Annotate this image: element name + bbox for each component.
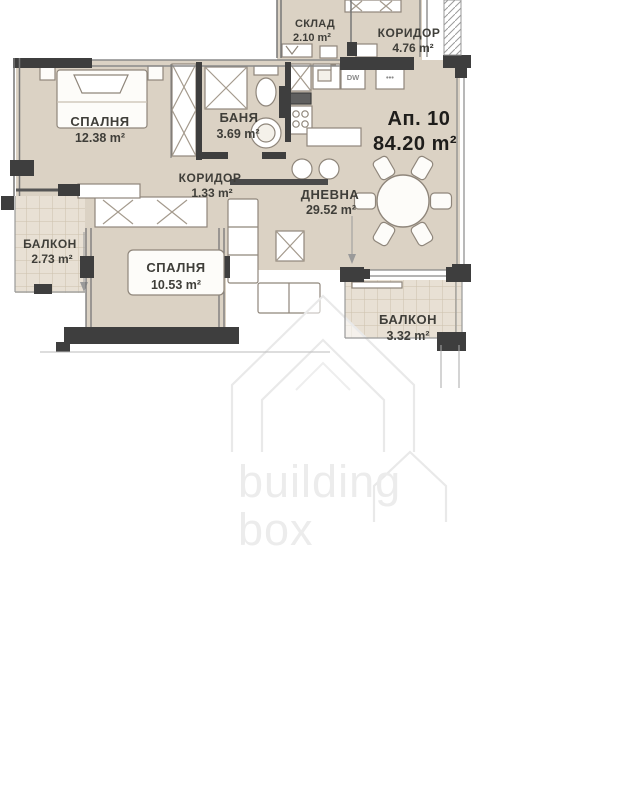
room-label-living-room-name: ДНЕВНА — [301, 187, 360, 202]
shower-icon — [205, 67, 247, 109]
room-label-balcony-left-area: 2.73 m² — [31, 252, 72, 266]
wall-segment — [1, 196, 14, 210]
coffee-table-icon — [276, 231, 304, 261]
kitchen-grill-icon — [290, 93, 311, 104]
wall-segment — [262, 152, 286, 159]
room-label-corridor-name: КОРИДОР — [179, 171, 242, 185]
wall-segment — [56, 342, 70, 352]
dishwasher-label: DW — [347, 73, 360, 82]
tv-stand-icon — [230, 179, 328, 185]
window-hatch — [444, 0, 461, 55]
room-label-bathroom-area: 3.69 m² — [216, 127, 259, 141]
wall-segment — [10, 160, 34, 176]
wall-segment — [443, 55, 471, 68]
wardrobe-icon — [95, 197, 207, 227]
threshold-icon — [352, 282, 402, 288]
toilet-icon — [254, 66, 278, 106]
floor-plan-page: СКЛАД 2.10 m² КОРИДОР 4.76 m² СПАЛНЯ 12.… — [0, 0, 625, 785]
wall-segment — [13, 58, 92, 68]
wall-segment — [196, 62, 202, 160]
wall-segment — [64, 327, 239, 344]
appliance-dots-label: ••• — [386, 73, 394, 82]
door-handle — [362, 269, 370, 279]
wall-segment — [279, 86, 287, 118]
room-label-balcony-left-name: БАЛКОН — [23, 237, 77, 251]
wall-segment — [80, 256, 94, 278]
bedroom-2-label-box: СПАЛНЯ 10.53 m² — [128, 250, 224, 295]
room-label-bedroom-1-area: 12.38 m² — [75, 131, 125, 145]
watermark-brand: building box — [238, 456, 401, 555]
kitchen-hood-icon — [290, 64, 311, 91]
watermark-line-2: box — [238, 504, 314, 555]
wall-segment — [58, 184, 80, 196]
kitchen-sink-icon — [313, 64, 340, 89]
wall-segment — [340, 57, 414, 70]
wall-segment — [455, 68, 467, 78]
chair-icon — [431, 193, 452, 209]
apartment-area-label: 84.20 m² — [373, 133, 457, 155]
stool-icon — [292, 159, 312, 179]
storage-shelf-icon — [282, 44, 312, 57]
kitchen-counter-icon — [307, 128, 361, 146]
wardrobe-icon — [172, 64, 196, 156]
nightstand-icon — [148, 66, 163, 80]
room-label-bedroom-1-name: СПАЛНЯ — [70, 114, 129, 129]
wall-segment — [200, 152, 228, 159]
room-label-storage-area: 2.10 m² — [293, 32, 331, 44]
room-label-living-room-area: 29.52 m² — [306, 203, 356, 217]
room-label-corridor-area: 1.33 m² — [191, 186, 232, 200]
apartment-number-label: Ап. 10 — [388, 108, 451, 130]
room-label-balcony-right-area: 3.32 m² — [386, 329, 429, 343]
washer-icon — [356, 44, 377, 57]
room-label-corridor-top-name: КОРИДОР — [378, 26, 441, 40]
wardrobe-icon — [345, 0, 401, 12]
watermark-line-1: building — [238, 456, 401, 507]
dresser-icon — [78, 184, 140, 198]
stool-icon — [319, 159, 339, 179]
wall-segment — [34, 284, 52, 294]
wall-segment — [347, 42, 357, 56]
room-label-storage-name: СКЛАД — [295, 18, 335, 30]
cabinet-icon — [320, 46, 337, 58]
room-label-bedroom-2-name: СПАЛНЯ — [146, 260, 205, 275]
room-label-bedroom-2-area: 10.53 m² — [151, 278, 201, 292]
wall-segment — [340, 267, 364, 282]
nightstand-icon — [40, 66, 55, 80]
room-label-bathroom-name: БАНЯ — [220, 110, 259, 125]
room-label-balcony-right-name: БАЛКОН — [379, 312, 437, 327]
floor-plan-svg: СКЛАД 2.10 m² КОРИДОР 4.76 m² СПАЛНЯ 12.… — [0, 0, 625, 785]
room-label-corridor-top-area: 4.76 m² — [392, 41, 433, 55]
wall-segment — [446, 267, 471, 282]
